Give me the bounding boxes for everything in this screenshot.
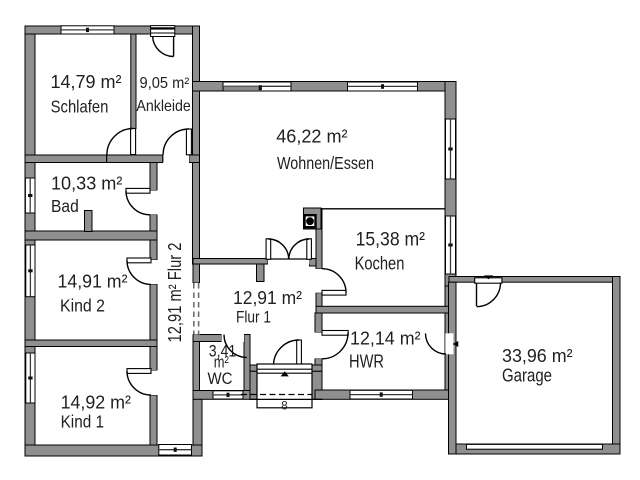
svg-text:Ankleide: Ankleide: [136, 98, 191, 115]
svg-text:8: 8: [281, 401, 287, 413]
svg-text:Flur 1: Flur 1: [236, 309, 271, 327]
svg-text:9,05 m²: 9,05 m²: [140, 75, 190, 92]
svg-text:15,38 m²: 15,38 m²: [356, 230, 425, 251]
svg-text:Kind 1: Kind 1: [61, 412, 104, 432]
svg-text:14,91 m²: 14,91 m²: [58, 272, 128, 292]
svg-text:12,91 m²: 12,91 m²: [233, 287, 302, 308]
svg-text:HWR: HWR: [349, 352, 384, 372]
svg-text:m²: m²: [214, 354, 229, 372]
svg-text:12,91 m² Flur 2: 12,91 m² Flur 2: [165, 243, 185, 343]
svg-text:14,92 m²: 14,92 m²: [61, 393, 131, 413]
svg-text:14,79 m²: 14,79 m²: [51, 72, 122, 92]
svg-text:WC: WC: [208, 370, 233, 388]
svg-text:Kind 2: Kind 2: [60, 296, 105, 316]
svg-text:46,22 m²: 46,22 m²: [276, 126, 347, 147]
svg-text:33,96 m²: 33,96 m²: [502, 345, 573, 366]
svg-text:Wohnen/Essen: Wohnen/Essen: [277, 153, 374, 173]
svg-text:Garage: Garage: [502, 366, 552, 386]
svg-text:10,33 m²: 10,33 m²: [51, 174, 122, 194]
svg-text:Kochen: Kochen: [355, 253, 405, 274]
svg-text:Bad: Bad: [51, 196, 79, 216]
svg-text:12,14 m²: 12,14 m²: [350, 328, 421, 349]
svg-text:Schlafen: Schlafen: [51, 97, 109, 117]
